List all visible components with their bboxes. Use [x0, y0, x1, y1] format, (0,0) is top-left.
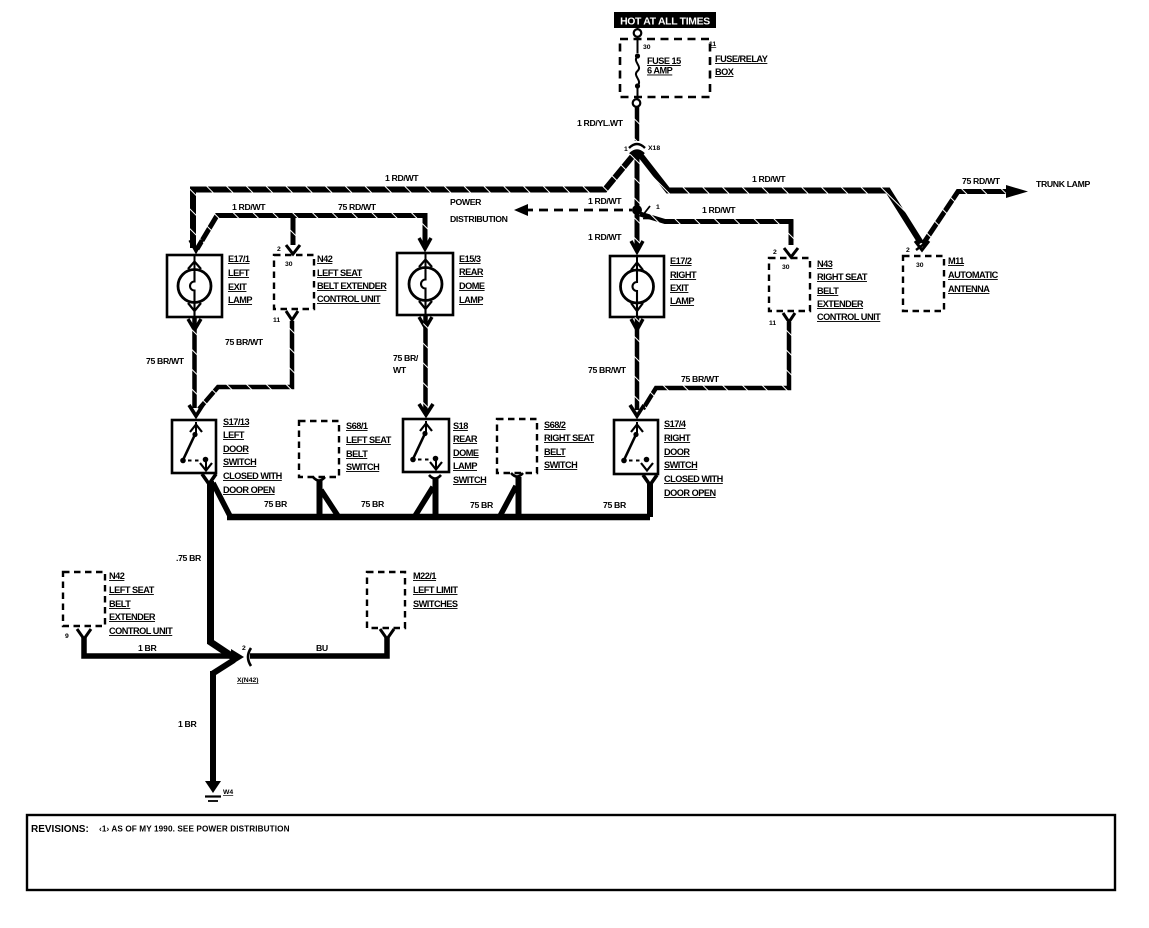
svg-text:BELT: BELT	[346, 449, 368, 459]
svg-text:75 BR: 75 BR	[264, 499, 288, 509]
svg-text:EXIT: EXIT	[670, 283, 689, 293]
svg-text:SWITCH: SWITCH	[453, 475, 487, 485]
svg-text:30: 30	[285, 261, 293, 268]
svg-text:1 RD/WT: 1 RD/WT	[752, 174, 786, 184]
svg-text:RIGHT SEAT: RIGHT SEAT	[817, 272, 868, 282]
svg-text:N43: N43	[817, 259, 833, 269]
svg-text:75 BR/WT: 75 BR/WT	[588, 365, 627, 375]
svg-text:2: 2	[277, 246, 281, 253]
svg-text:LEFT SEAT: LEFT SEAT	[109, 585, 155, 595]
svg-text:WT: WT	[393, 365, 407, 375]
svg-text:X(N42): X(N42)	[237, 677, 259, 684]
svg-text:DOME: DOME	[453, 448, 479, 458]
svg-text:2: 2	[242, 645, 246, 652]
svg-text:REAR: REAR	[453, 434, 478, 444]
svg-text:1 BR: 1 BR	[138, 643, 157, 653]
svg-text:CLOSED WITH: CLOSED WITH	[664, 474, 724, 484]
svg-text:30: 30	[643, 44, 651, 51]
svg-text:EXIT: EXIT	[228, 282, 247, 292]
svg-text:1: 1	[656, 204, 660, 211]
svg-text:LEFT LIMIT: LEFT LIMIT	[413, 585, 458, 595]
svg-text:S68/2: S68/2	[544, 420, 566, 430]
svg-text:11: 11	[273, 317, 280, 324]
svg-text:RIGHT: RIGHT	[670, 270, 697, 280]
svg-text:SWITCH: SWITCH	[223, 457, 257, 467]
svg-text:CONTROL UNIT: CONTROL UNIT	[109, 626, 173, 636]
svg-text:CONTROL UNIT: CONTROL UNIT	[817, 312, 881, 322]
svg-text:2: 2	[773, 249, 777, 256]
svg-text:75 BR/WT: 75 BR/WT	[681, 374, 720, 384]
svg-text:BELT: BELT	[544, 447, 566, 457]
svg-text:1 RD/WT: 1 RD/WT	[232, 202, 266, 212]
svg-text:LEFT: LEFT	[223, 430, 245, 440]
svg-text:SWITCHES: SWITCHES	[413, 599, 458, 609]
svg-text:REVISIONS:: REVISIONS:	[31, 824, 89, 835]
svg-text:DOOR: DOOR	[664, 447, 690, 457]
svg-text:TRUNK LAMP: TRUNK LAMP	[1036, 179, 1090, 189]
svg-text:EXTENDER: EXTENDER	[109, 612, 156, 622]
svg-text:LAMP: LAMP	[670, 296, 694, 306]
svg-text:RIGHT: RIGHT	[664, 433, 691, 443]
svg-text:1 RD/WT: 1 RD/WT	[702, 205, 736, 215]
svg-text:LEFT: LEFT	[228, 268, 250, 278]
svg-text:AUTOMATIC: AUTOMATIC	[948, 270, 999, 280]
svg-text:1 BR: 1 BR	[178, 719, 197, 729]
svg-text:LAMP: LAMP	[228, 295, 252, 305]
svg-text:E15/3: E15/3	[459, 254, 481, 264]
svg-text:9: 9	[65, 633, 69, 640]
svg-text:X18: X18	[648, 145, 660, 152]
svg-text:S18: S18	[453, 421, 468, 431]
svg-text:REAR: REAR	[459, 267, 484, 277]
svg-text:LAMP: LAMP	[459, 295, 483, 305]
svg-text:SWITCH: SWITCH	[346, 462, 380, 472]
svg-text:11: 11	[709, 41, 716, 48]
svg-text:BELT: BELT	[817, 286, 839, 296]
svg-text:BU: BU	[316, 643, 328, 653]
svg-text:LAMP: LAMP	[453, 461, 477, 471]
svg-text:2: 2	[906, 247, 910, 254]
svg-text:.75 BR: .75 BR	[176, 553, 202, 563]
svg-text:‹1› AS OF MY 1990. SEE POWER: ‹1› AS OF MY 1990. SEE POWER DISTRIBUTIO…	[99, 825, 290, 834]
svg-text:FUSE/RELAY: FUSE/RELAY	[715, 54, 768, 64]
svg-text:POWER: POWER	[450, 197, 482, 207]
svg-text:SWITCH: SWITCH	[664, 460, 698, 470]
svg-text:M11: M11	[948, 256, 964, 266]
svg-text:RIGHT SEAT: RIGHT SEAT	[544, 433, 595, 443]
svg-text:DOOR: DOOR	[223, 444, 249, 454]
svg-text:W4: W4	[223, 789, 233, 796]
svg-text:EXTENDER: EXTENDER	[817, 299, 864, 309]
svg-text:75 BR: 75 BR	[470, 500, 494, 510]
svg-text:DISTRIBUTION: DISTRIBUTION	[450, 214, 508, 224]
svg-text:75 RD/WT: 75 RD/WT	[338, 202, 377, 212]
svg-text:S17/13: S17/13	[223, 417, 250, 427]
svg-text:E17/1: E17/1	[228, 254, 250, 264]
svg-text:HOT AT ALL TIMES: HOT AT ALL TIMES	[620, 17, 710, 28]
svg-text:1 RD/WT: 1 RD/WT	[588, 196, 622, 206]
svg-text:LEFT SEAT: LEFT SEAT	[346, 435, 392, 445]
svg-text:11: 11	[769, 320, 776, 327]
svg-text:6 AMP: 6 AMP	[647, 66, 673, 76]
svg-text:75 BR/WT: 75 BR/WT	[225, 337, 264, 347]
svg-text:LEFT SEAT: LEFT SEAT	[317, 268, 363, 278]
svg-text:FUSE 15: FUSE 15	[647, 56, 681, 66]
svg-text:DOOR OPEN: DOOR OPEN	[223, 485, 276, 495]
svg-text:75 BR: 75 BR	[603, 500, 627, 510]
svg-text:N42: N42	[109, 571, 125, 581]
svg-text:75 RD/WT: 75 RD/WT	[962, 176, 1001, 186]
svg-text:1: 1	[624, 146, 628, 153]
svg-text:BELT: BELT	[109, 599, 131, 609]
svg-text:1 RD/YL.WT: 1 RD/YL.WT	[577, 118, 624, 128]
svg-text:75 BR/: 75 BR/	[393, 353, 419, 363]
svg-text:CLOSED WITH: CLOSED WITH	[223, 471, 283, 481]
svg-text:S68/1: S68/1	[346, 421, 368, 431]
svg-text:BELT EXTENDER: BELT EXTENDER	[317, 281, 387, 291]
svg-text:DOME: DOME	[459, 281, 485, 291]
svg-text:E17/2: E17/2	[670, 256, 692, 266]
svg-text:30: 30	[916, 262, 924, 269]
svg-text:ANTENNA: ANTENNA	[948, 284, 990, 294]
svg-text:S17/4: S17/4	[664, 419, 687, 429]
svg-text:DOOR OPEN: DOOR OPEN	[664, 488, 717, 498]
svg-text:SWITCH: SWITCH	[544, 460, 578, 470]
svg-text:M22/1: M22/1	[413, 571, 436, 581]
svg-text:1 RD/WT: 1 RD/WT	[385, 173, 419, 183]
svg-text:CONTROL UNIT: CONTROL UNIT	[317, 294, 381, 304]
svg-text:1 RD/WT: 1 RD/WT	[588, 232, 622, 242]
svg-text:N42: N42	[317, 254, 333, 264]
svg-text:75 BR/WT: 75 BR/WT	[146, 356, 185, 366]
svg-text:BOX: BOX	[715, 67, 735, 77]
svg-text:75 BR: 75 BR	[361, 499, 385, 509]
svg-text:30: 30	[782, 264, 790, 271]
